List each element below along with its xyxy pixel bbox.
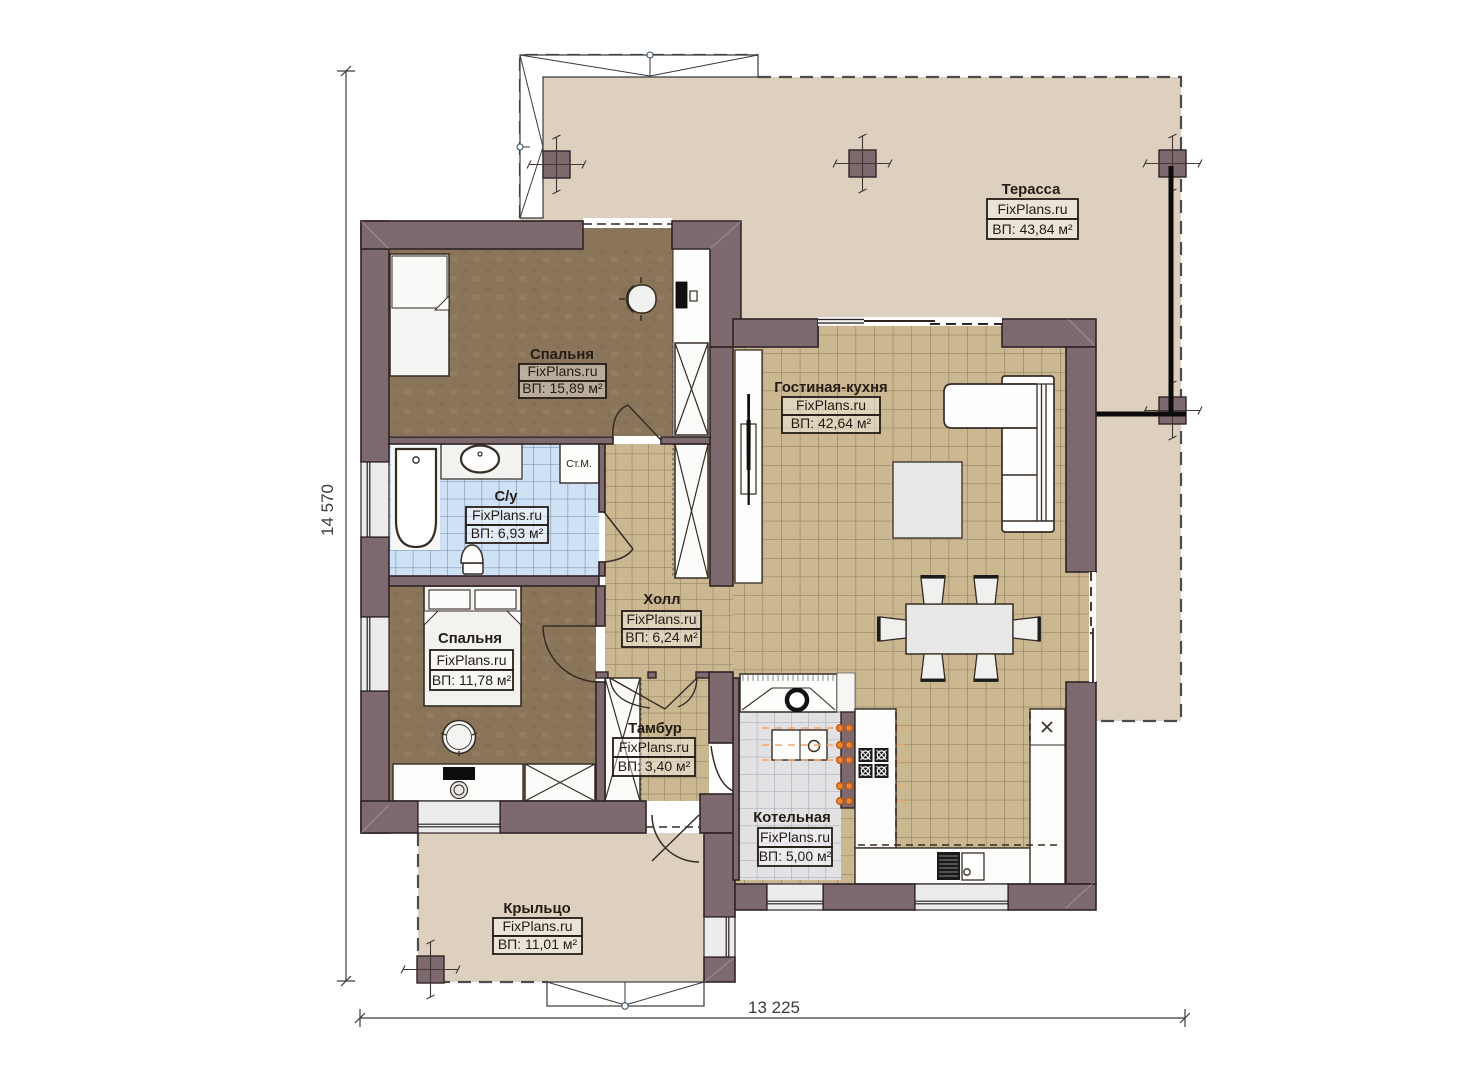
svg-text:Спальня: Спальня [530, 347, 594, 363]
svg-text:ВП: 6,93 м²: ВП: 6,93 м² [471, 525, 544, 541]
svg-text:Тамбур: Тамбур [628, 721, 682, 737]
svg-text:С/у: С/у [494, 489, 518, 505]
svg-text:FixPlans.ru: FixPlans.ru [502, 918, 572, 934]
svg-text:14 570: 14 570 [318, 484, 337, 536]
svg-text:ВП: 42,64 м²: ВП: 42,64 м² [791, 415, 872, 431]
svg-text:Спальня: Спальня [438, 631, 502, 647]
svg-text:13 225: 13 225 [748, 998, 800, 1017]
svg-text:Терасса: Терасса [1002, 182, 1061, 198]
svg-text:FixPlans.ru: FixPlans.ru [436, 652, 506, 668]
svg-text:FixPlans.ru: FixPlans.ru [796, 397, 866, 413]
svg-text:FixPlans.ru: FixPlans.ru [472, 507, 542, 523]
svg-text:Крыльцо: Крыльцо [503, 901, 570, 917]
svg-text:FixPlans.ru: FixPlans.ru [997, 201, 1067, 217]
svg-text:Котельная: Котельная [753, 810, 830, 826]
svg-text:ВП: 43,84 м²: ВП: 43,84 м² [992, 221, 1073, 237]
svg-text:Ст.М.: Ст.М. [566, 458, 592, 470]
svg-text:FixPlans.ru: FixPlans.ru [760, 829, 830, 845]
svg-text:Холл: Холл [643, 592, 680, 608]
svg-text:ВП: 6,24 м²: ВП: 6,24 м² [625, 629, 698, 645]
svg-text:FixPlans.ru: FixPlans.ru [619, 739, 689, 755]
svg-text:FixPlans.ru: FixPlans.ru [626, 611, 696, 627]
svg-text:ВП: 3,40 м²: ВП: 3,40 м² [618, 758, 691, 774]
svg-text:ВП: 11,01 м²: ВП: 11,01 м² [498, 936, 578, 952]
svg-text:Гостиная-кухня: Гостиная-кухня [774, 380, 887, 396]
svg-text:ВП: 11,78 м²: ВП: 11,78 м² [432, 672, 512, 688]
svg-text:ВП: 5,00 м²: ВП: 5,00 м² [759, 848, 832, 864]
svg-text:FixPlans.ru: FixPlans.ru [527, 363, 597, 379]
svg-text:ВП: 15,89 м²: ВП: 15,89 м² [522, 380, 603, 396]
